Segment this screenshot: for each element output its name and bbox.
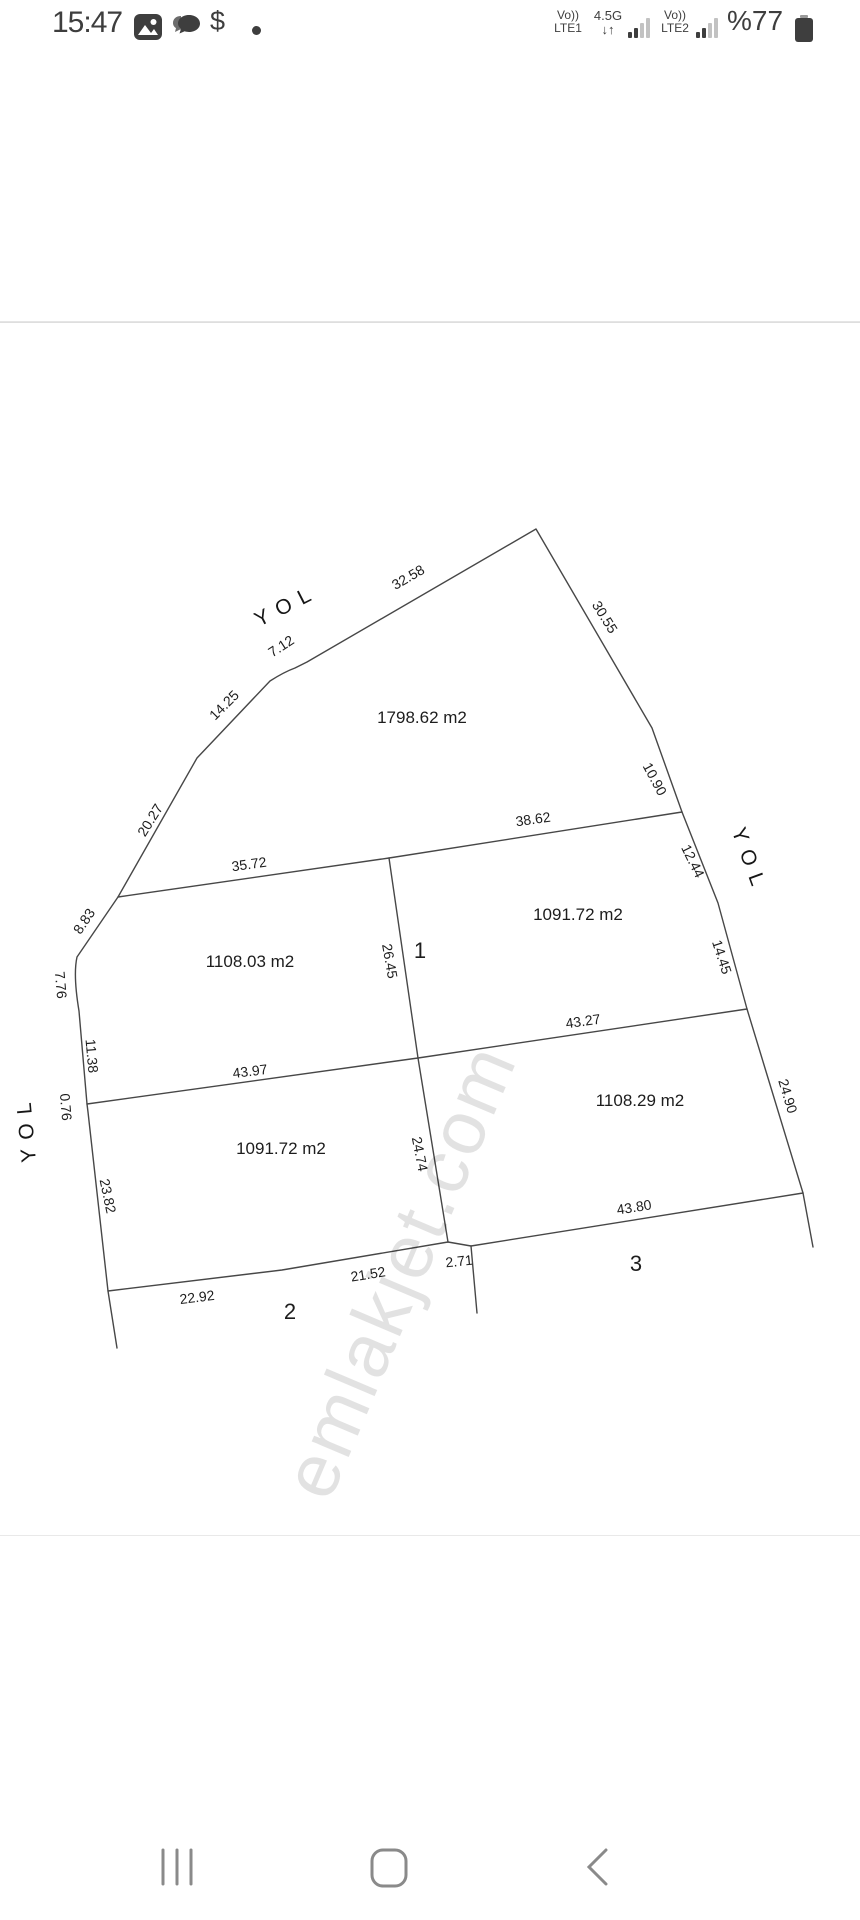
- parcel-number: 2: [284, 1299, 296, 1325]
- parcel-number: 3: [630, 1251, 642, 1277]
- area-label: 1091.72 m2: [533, 905, 623, 925]
- parcel-number: 1: [414, 938, 426, 964]
- area-label: 1798.62 m2: [377, 708, 467, 728]
- stub-bottom-left: [108, 1291, 117, 1348]
- edge-length-label: 0.76: [57, 1093, 75, 1122]
- area-label: 1108.03 m2: [206, 952, 295, 972]
- navigation-bar: [0, 1830, 860, 1920]
- recents-button-icon[interactable]: [160, 1848, 194, 1886]
- back-button-icon[interactable]: [584, 1848, 610, 1886]
- stub-bottom-right: [803, 1193, 813, 1247]
- parcel-plan-photo[interactable]: emlakjet.com 32.5830.557.1214.2520.278.8…: [0, 323, 860, 1535]
- interior-line-upper: [118, 812, 682, 897]
- edge-length-label: 2.71: [445, 1252, 474, 1271]
- edge-length-label: 11.38: [83, 1038, 102, 1073]
- area-label: 1091.72 m2: [236, 1139, 326, 1159]
- edge-length-label: 7.76: [52, 971, 70, 1000]
- area-label: 1108.29 m2: [596, 1091, 685, 1111]
- home-button-icon[interactable]: [370, 1848, 408, 1888]
